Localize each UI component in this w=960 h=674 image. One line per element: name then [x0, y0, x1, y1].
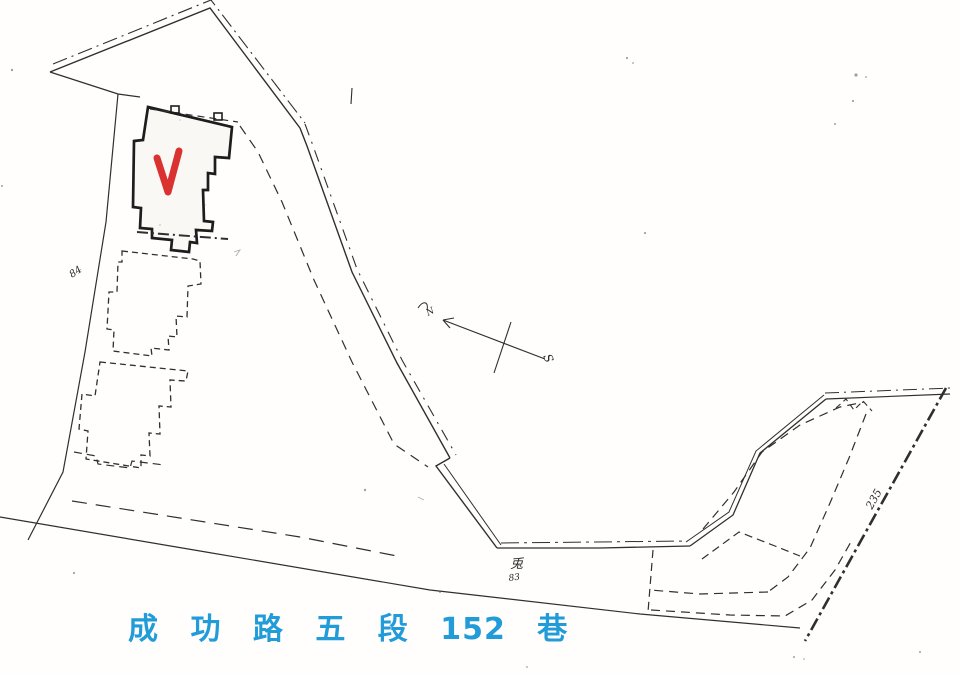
boundary-notch-twin — [444, 464, 501, 545]
boundary-topright-dashdot — [825, 388, 951, 393]
dashed-parcel-upper — [107, 251, 201, 356]
boundary-right-thick — [805, 388, 946, 641]
street-name-label: 成 功 路 五 段 152 巷 — [128, 612, 568, 647]
dashed-ne-parallel — [703, 402, 864, 529]
annotation-left-84: 84 — [68, 264, 85, 280]
compass-north-label: N — [424, 306, 438, 320]
dashed-long-sweep — [768, 414, 866, 592]
cadastral-map-svg: N S 84 兎 83 235 成 功 路 五 段 152 巷 — [0, 0, 960, 674]
compass-crossbar — [494, 322, 511, 373]
compass-north-arrow: N S — [418, 303, 556, 373]
selected-building-parcel — [133, 106, 238, 252]
annotation-right-235: 235 — [863, 487, 885, 513]
dashed-building-chain — [74, 251, 201, 468]
dashed-vertical-divider — [648, 550, 653, 612]
boundary-left — [28, 94, 118, 540]
boundary-left-upper — [50, 72, 140, 97]
boundary-bottom-horizontal-dashdot — [501, 541, 688, 543]
boundary-stub — [351, 88, 352, 104]
road-parallel-dashed — [72, 501, 397, 556]
dashed-bottom-run — [650, 590, 768, 594]
boundary-diagonal — [300, 128, 450, 458]
boundary-top-peak-dashdot — [53, 0, 305, 123]
boundary-topright — [826, 394, 950, 399]
building-outline-bold — [133, 107, 232, 252]
compass-south-label: S — [540, 352, 556, 365]
dashed-top-zigzag — [836, 399, 872, 411]
annotation-center-mark: 兎 — [510, 557, 525, 572]
dashed-small-peak — [702, 532, 800, 559]
dashed-lower-sweep — [651, 540, 852, 616]
inner-dashed-diagonal — [240, 126, 428, 467]
annotation-center-83: 83 — [508, 572, 521, 584]
boundary-diagonal-dashdot — [305, 124, 456, 455]
scanned-map-page: N S 84 兎 83 235 成 功 路 五 段 152 巷 — [0, 0, 960, 674]
boundary-bottom-horizontal — [497, 546, 690, 548]
compass-main-line — [443, 320, 545, 359]
dashed-parcel-lower — [79, 362, 188, 468]
boundary-notch — [436, 458, 497, 548]
boundary-ne-climb — [690, 399, 826, 546]
